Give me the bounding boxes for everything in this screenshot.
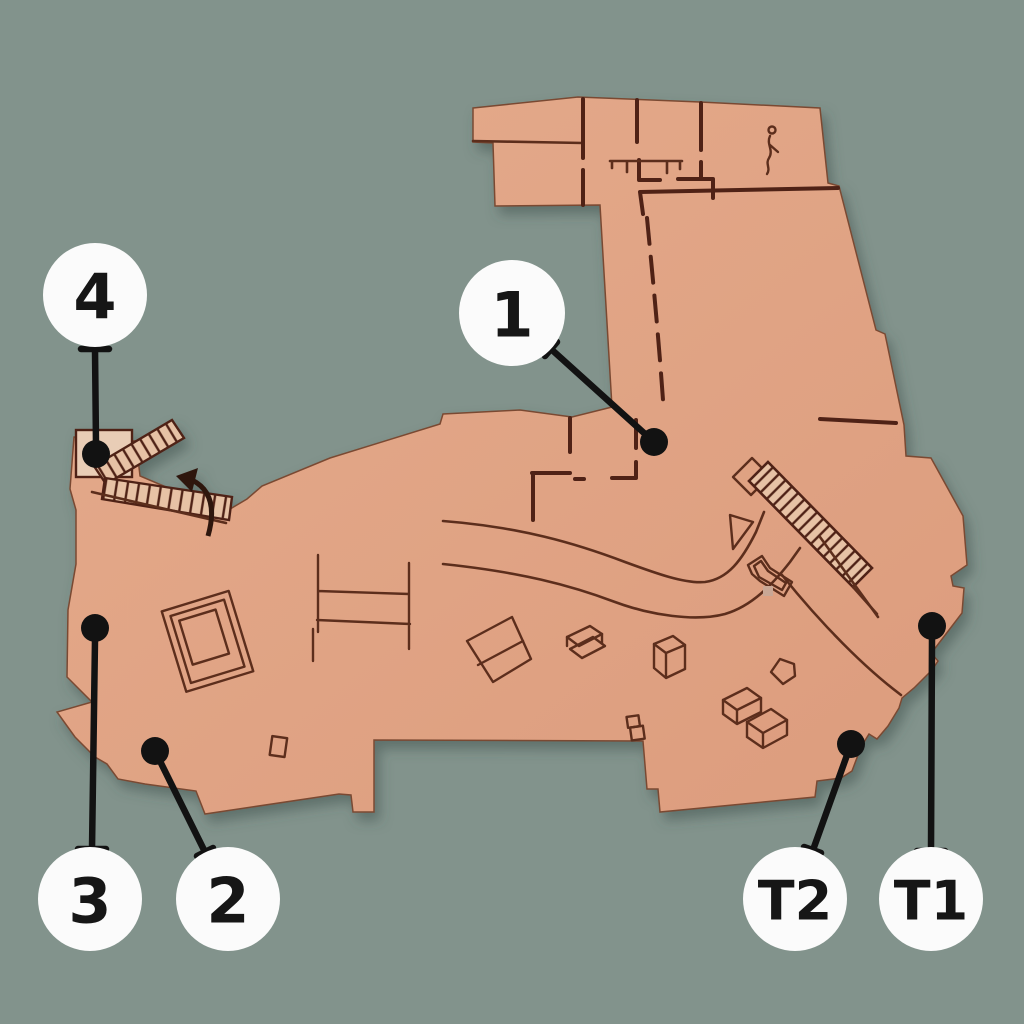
marker-4-dot [82,440,110,468]
marker-T1-leader [931,638,932,851]
marker-1-label: 1 [490,279,533,352]
marker-T1-dot [918,612,946,640]
floorplan [57,97,967,814]
marker-1-dot [640,428,668,456]
marker-T2-dot [837,730,865,758]
floorplan-outline [57,97,967,814]
marker-2-label: 2 [206,865,249,938]
floorplan-illustration: 4 1 3 2 [0,0,1024,1024]
marker-T1-label: T1 [894,870,968,933]
marker-3-dot [81,614,109,642]
marker-2-dot [141,737,169,765]
marker-3-label: 3 [68,865,111,938]
marker-4-leader [95,349,96,445]
marker-T2-label: T2 [758,870,832,933]
floorplan-scene: 4 1 3 2 [0,0,1024,1024]
marker-3-leader [92,640,95,849]
marker-4-label: 4 [73,261,116,334]
